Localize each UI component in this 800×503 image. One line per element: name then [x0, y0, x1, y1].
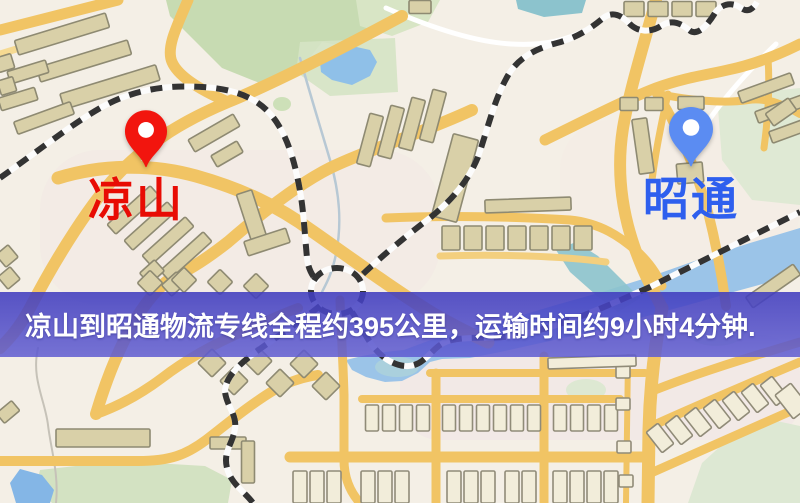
building-block	[620, 98, 638, 111]
building-block	[588, 405, 601, 431]
building-block	[617, 441, 631, 453]
building-block	[464, 471, 478, 503]
building-block	[508, 226, 526, 250]
building-block	[447, 471, 461, 503]
building-block	[552, 226, 570, 250]
building-block	[477, 405, 490, 431]
building-block	[522, 471, 536, 503]
building-block	[616, 366, 630, 378]
building-block	[378, 471, 392, 503]
building-block	[645, 98, 663, 111]
building-block	[481, 471, 495, 503]
building-block	[378, 105, 405, 159]
route-banner-text: 凉山到昭通物流专线全程约395公里，运输时间约9小时4分钟.	[0, 305, 756, 344]
building-block	[400, 405, 413, 431]
building-block	[310, 471, 324, 503]
building-block	[0, 401, 20, 424]
building-block	[553, 471, 567, 503]
building-block	[420, 89, 447, 143]
building-block	[443, 405, 456, 431]
building-block	[56, 429, 150, 447]
route-banner: 凉山到昭通物流专线全程约395公里，运输时间约9小时4分钟.	[0, 292, 800, 357]
building-block	[616, 398, 630, 410]
building-block	[548, 355, 636, 369]
building-block	[528, 405, 541, 431]
building-block	[366, 405, 379, 431]
building-block	[648, 2, 668, 17]
building-block	[672, 2, 692, 17]
building-block	[361, 471, 375, 503]
building-block	[442, 226, 460, 250]
building-block	[399, 97, 426, 151]
building-block	[293, 471, 307, 503]
route-map-image: 凉山 昭通 凉山到昭通物流专线全程约395公里，运输时间约9小时4分钟.	[0, 0, 800, 503]
building-block	[530, 226, 548, 250]
building-block	[485, 197, 571, 213]
building-block	[587, 471, 601, 503]
building-block	[383, 405, 396, 431]
building-block	[505, 471, 519, 503]
building-block	[678, 97, 704, 110]
building-block	[327, 471, 341, 503]
building-block	[0, 267, 20, 290]
building-block	[574, 226, 592, 250]
building-block	[571, 405, 584, 431]
building-block	[409, 1, 431, 14]
building-block	[511, 405, 524, 431]
destination-label: 昭通	[643, 176, 739, 222]
building-block	[242, 441, 255, 483]
building-block	[570, 471, 584, 503]
map-artwork	[0, 0, 800, 503]
building-block	[395, 471, 409, 503]
building-block	[460, 405, 473, 431]
building-block	[619, 475, 633, 487]
building-block	[494, 405, 507, 431]
building-block	[624, 2, 644, 17]
building-block	[0, 245, 18, 268]
building-block	[464, 226, 482, 250]
pond-top-center	[516, 0, 586, 17]
building-block	[604, 471, 618, 503]
building-block	[486, 226, 504, 250]
origin-label: 凉山	[88, 177, 184, 223]
building-block	[554, 405, 567, 431]
building-block	[417, 405, 430, 431]
